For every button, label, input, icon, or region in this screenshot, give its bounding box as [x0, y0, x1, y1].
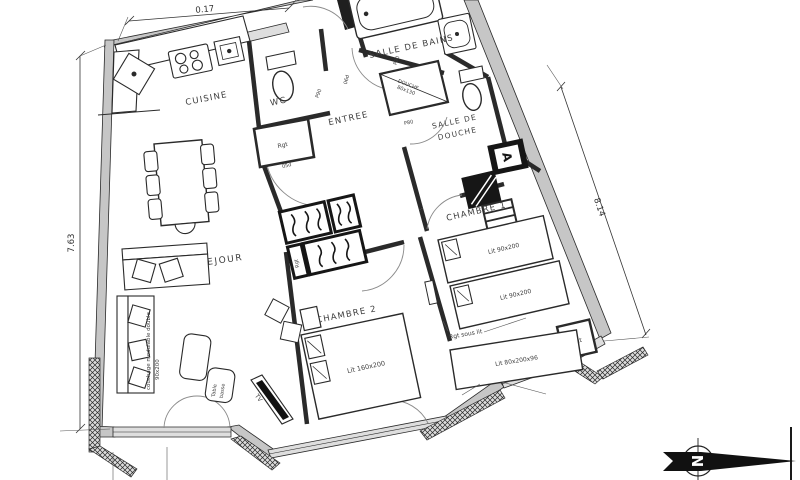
- floor-plan-canvas: CUISINE WC P90 Rgt 05d SALLE DE BAINS 06…: [0, 0, 800, 480]
- dining-table: [143, 139, 221, 237]
- living-room: SEJOUR couchage modulable double 90x200: [117, 139, 293, 424]
- kitchen-appliance: [214, 37, 244, 66]
- shower-cistern: [459, 66, 484, 83]
- sofa-convertible-label-2: 90x200: [155, 359, 161, 380]
- wardrobes: Rgt: [279, 195, 368, 278]
- wc-door-label: P90: [315, 88, 324, 99]
- kitchen: CUISINE: [112, 16, 250, 113]
- bedroom-2: CHAMBRE 2 Lit 160x200: [265, 299, 421, 419]
- door-label-p90: P90: [393, 55, 402, 66]
- bathroom-basin: [438, 13, 477, 55]
- railing-right-low: [420, 390, 505, 440]
- floor-plan-page: CUISINE WC P90 Rgt 05d SALLE DE BAINS 06…: [0, 0, 800, 480]
- bedroom-1: CHAMBRE 1 Lit 90x200 Lit 90x200 Rgt sous…: [425, 200, 597, 395]
- sofa-top: [122, 243, 210, 290]
- cushion-1: [265, 299, 289, 323]
- balcony-door-left-arc: [164, 396, 197, 428]
- room-label-entree: ENTREE: [328, 110, 370, 128]
- sofa-convertible-label-1: couchage modulable double: [146, 312, 152, 390]
- storage-under-bed-label: Rgt sous lit: [449, 328, 484, 341]
- wc-cistern: [266, 51, 296, 70]
- dimension-right-value: 8.14: [591, 197, 607, 218]
- railing-left: [89, 358, 100, 452]
- sejour-door-arc: [266, 160, 318, 206]
- north-arrow-body: [663, 452, 796, 471]
- door-swing-label-05d: 05d: [281, 162, 292, 170]
- door-swing-label-06d: 06d: [343, 74, 351, 85]
- bench-bed-80x200: Lit 80x200x96: [450, 330, 583, 390]
- nightstand: [300, 306, 321, 330]
- coffee-table: [179, 333, 212, 381]
- dimension-left-value: 7.63: [67, 234, 77, 253]
- north-letter: N: [688, 455, 706, 468]
- wc-room: WC P90 Rgt 05d: [254, 51, 323, 170]
- door-label-p80: P80: [404, 119, 414, 127]
- north-arrow: N: [663, 438, 796, 480]
- dimension-top-value: 0.17: [195, 4, 215, 16]
- technical-shaft: A: [487, 138, 528, 175]
- room-label-wc: WC: [269, 95, 287, 108]
- room-label-cuisine: CUISINE: [185, 90, 229, 108]
- bathtub: [347, 0, 443, 39]
- bed-160x200: Lit 160x200: [301, 313, 421, 419]
- tv-unit: TV: [251, 375, 293, 424]
- high-window-top: [244, 23, 289, 42]
- room-label-salle-de-bains: SALLE DE BAINS: [368, 33, 454, 61]
- cushion-2: [280, 321, 301, 342]
- coffee-table-labelled: Table basse: [204, 367, 235, 403]
- shower-toilet: [460, 82, 483, 112]
- railing-far-right: [597, 347, 648, 379]
